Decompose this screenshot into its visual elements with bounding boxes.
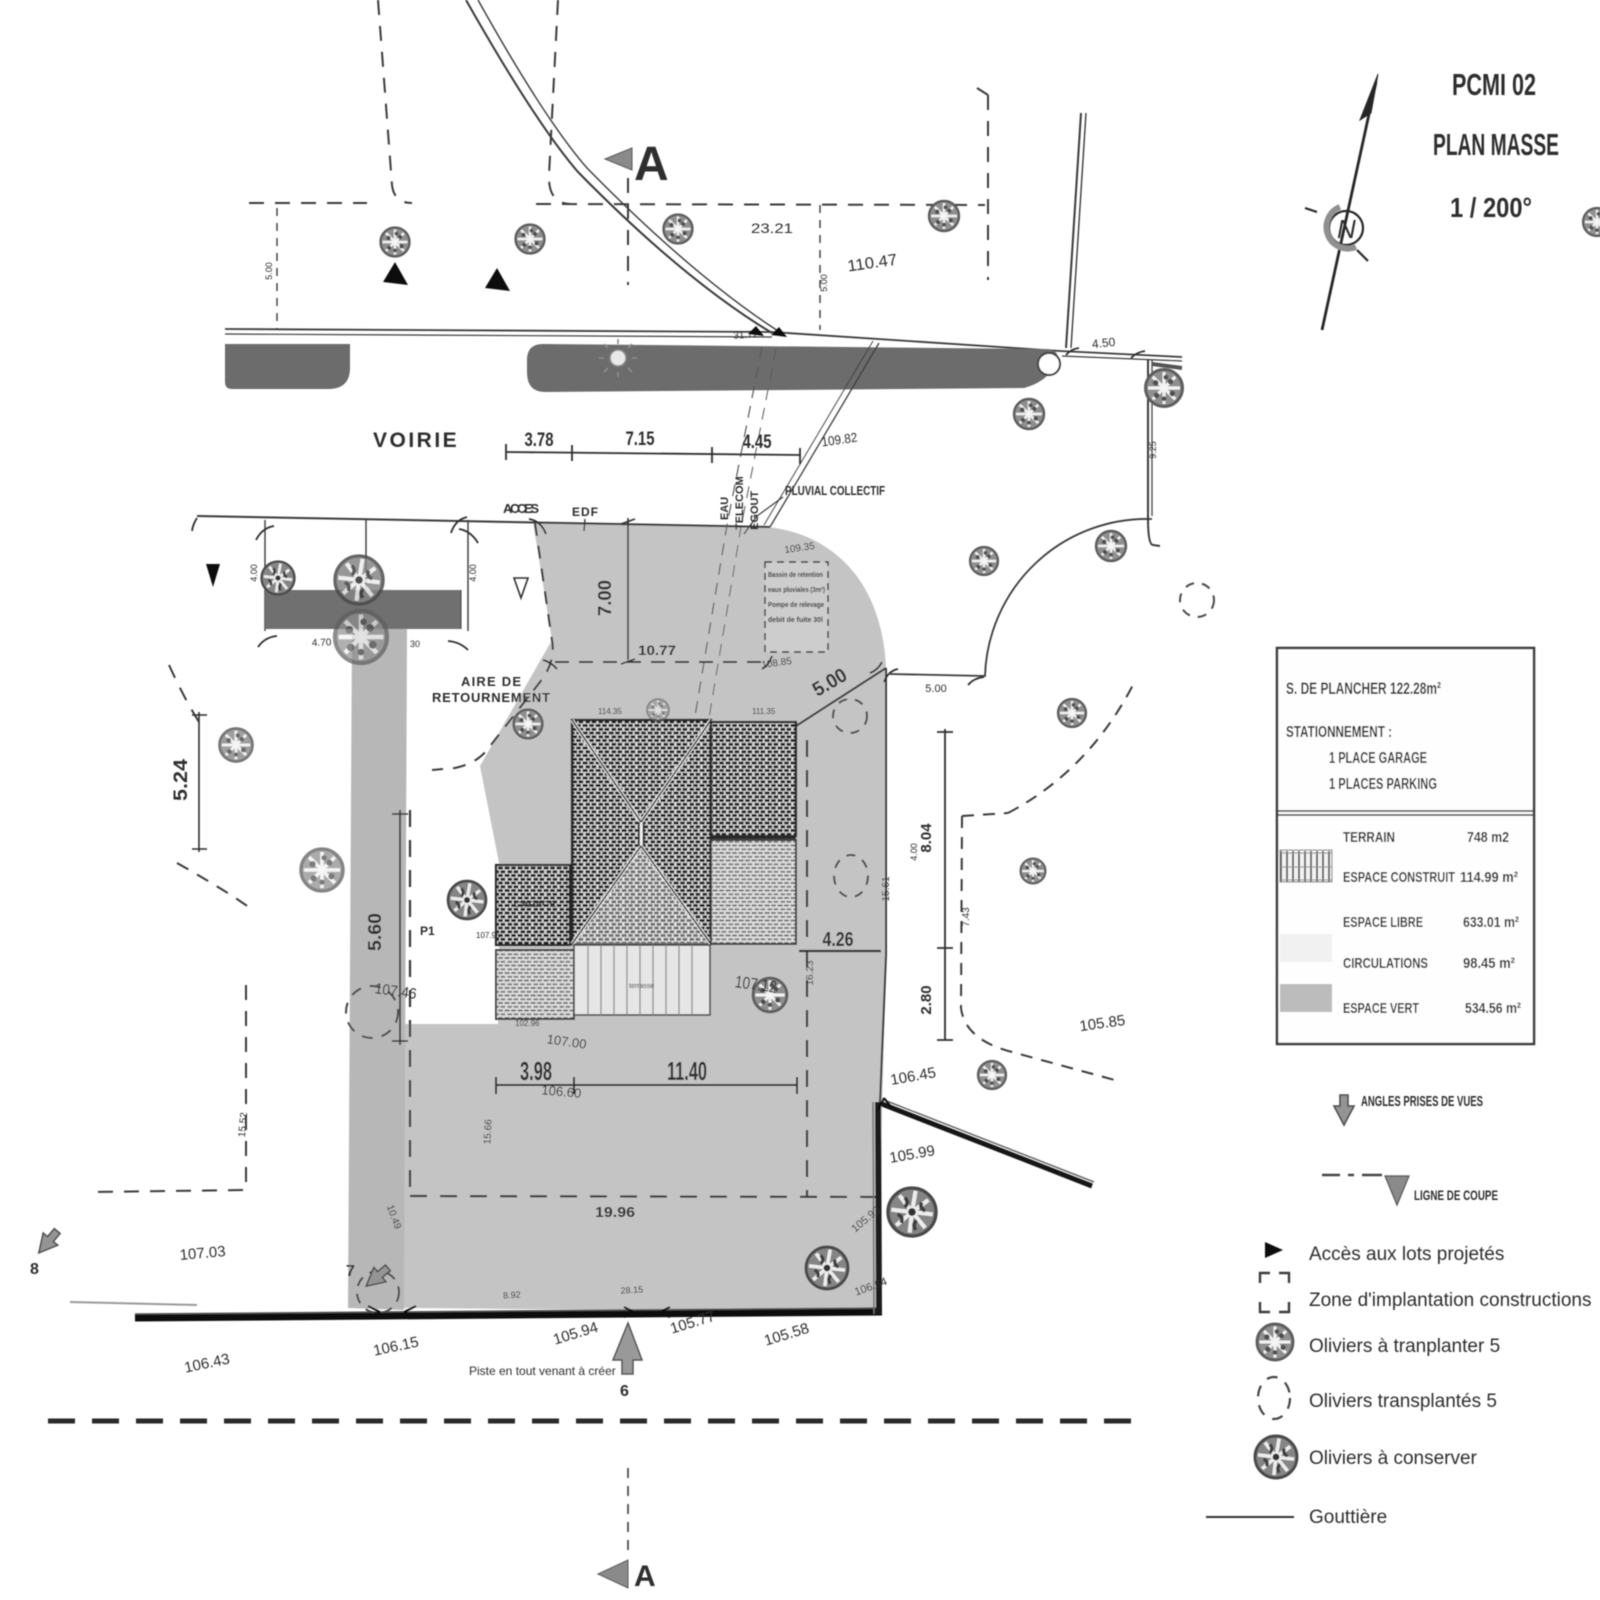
svg-text:2.80: 2.80 [918, 985, 935, 1014]
svg-text:4.50: 4.50 [1091, 335, 1116, 351]
svg-text:107.95: 107.95 [476, 931, 501, 940]
svg-text:debit de fuite 30l: debit de fuite 30l [768, 617, 823, 624]
svg-text:ACCES: ACCES [503, 501, 539, 516]
svg-text:748 m2: 748 m2 [1467, 829, 1509, 846]
svg-text:633.01 m²: 633.01 m² [1463, 914, 1519, 931]
svg-text:6: 6 [620, 1383, 629, 1400]
svg-text:RETOURNEMENT: RETOURNEMENT [432, 690, 550, 705]
svg-text:534.56 m²: 534.56 m² [1465, 1000, 1521, 1017]
svg-text:ESPACE CONSTRUIT: ESPACE CONSTRUIT [1343, 869, 1455, 886]
svg-text:Piste en tout venant à créer: Piste en tout venant à créer [469, 1364, 616, 1378]
svg-text:1 PLACES PARKING: 1 PLACES PARKING [1329, 776, 1437, 793]
svg-text:5.00: 5.00 [819, 274, 829, 292]
svg-text:terrasse: terrasse [629, 983, 654, 990]
svg-text:11.40: 11.40 [667, 1056, 707, 1086]
svg-text:4.26: 4.26 [823, 929, 854, 951]
svg-text:S. DE PLANCHER 122.28m²: S. DE PLANCHER 122.28m² [1286, 679, 1441, 698]
svg-text:5.00: 5.00 [925, 683, 946, 695]
svg-text:3.98: 3.98 [520, 1056, 552, 1086]
svg-text:A: A [634, 1560, 656, 1593]
svg-text:114.35: 114.35 [598, 707, 622, 716]
svg-text:PLAN MASSE: PLAN MASSE [1433, 127, 1559, 162]
svg-text:15.61: 15.61 [881, 876, 892, 901]
svg-text:114.99 m²: 114.99 m² [1460, 869, 1518, 886]
svg-text:28.15: 28.15 [620, 1284, 643, 1295]
svg-text:3.78: 3.78 [525, 430, 554, 451]
svg-text:8: 8 [30, 1261, 39, 1278]
svg-text:7.15: 7.15 [626, 429, 655, 450]
svg-text:4.00: 4.00 [909, 843, 919, 861]
svg-text:8.92: 8.92 [503, 1290, 521, 1301]
svg-text:4.00: 4.00 [468, 564, 478, 582]
svg-text:GARAGE: GARAGE [514, 900, 557, 909]
svg-text:111.35: 111.35 [752, 707, 776, 716]
svg-text:CIRCULATIONS: CIRCULATIONS [1343, 955, 1428, 972]
svg-text:eaux pluviales (3m³): eaux pluviales (3m³) [768, 587, 825, 594]
svg-text:Oliviers à conserver: Oliviers à conserver [1309, 1448, 1478, 1469]
svg-text:TERRAIN: TERRAIN [1343, 829, 1395, 846]
svg-text:EDF: EDF [572, 505, 598, 519]
svg-text:VOIRIE: VOIRIE [373, 429, 459, 452]
svg-text:5.00: 5.00 [264, 262, 274, 280]
svg-text:98.45 m²: 98.45 m² [1463, 955, 1515, 972]
svg-text:8.04: 8.04 [918, 823, 935, 853]
svg-text:Oliviers transplantés 5: Oliviers transplantés 5 [1309, 1391, 1497, 1412]
svg-text:23.21: 23.21 [751, 220, 793, 236]
svg-text:9.25: 9.25 [1148, 441, 1158, 459]
svg-text:15.52: 15.52 [237, 1111, 250, 1137]
svg-text:A: A [634, 138, 669, 191]
svg-text:AIRE DE: AIRE DE [461, 674, 521, 689]
svg-text:N: N [1337, 214, 1356, 244]
svg-text:10.77: 10.77 [638, 642, 676, 658]
svg-text:7.00: 7.00 [595, 580, 615, 616]
svg-text:15.66: 15.66 [482, 1119, 494, 1145]
svg-text:4.45: 4.45 [743, 432, 772, 453]
svg-text:7: 7 [346, 1263, 355, 1280]
svg-text:4.00: 4.00 [249, 564, 259, 582]
svg-text:Pompe de relevage: Pompe de relevage [768, 602, 824, 609]
svg-text:EAU: EAU [719, 497, 731, 520]
svg-text:ESPACE VERT: ESPACE VERT [1343, 1000, 1419, 1017]
svg-text:1 PLACE GARAGE: 1 PLACE GARAGE [1329, 750, 1427, 767]
svg-text:EGOUT: EGOUT [749, 491, 761, 530]
svg-text:Bassin de retention: Bassin de retention [768, 572, 823, 579]
svg-text:LIGNE DE COUPE: LIGNE DE COUPE [1414, 1187, 1498, 1203]
svg-text:102.96: 102.96 [515, 1019, 540, 1028]
svg-text:Accès aux lots projetés: Accès aux lots projetés [1309, 1244, 1504, 1265]
svg-text:1 / 200°: 1 / 200° [1450, 192, 1532, 223]
svg-text:16.23: 16.23 [805, 960, 816, 985]
svg-text:ANGLES PRISES DE VUES: ANGLES PRISES DE VUES [1361, 1093, 1483, 1110]
svg-text:7.43: 7.43 [961, 907, 972, 927]
svg-text:30: 30 [410, 639, 420, 649]
svg-text:PLUVIAL COLLECTIF: PLUVIAL COLLECTIF [785, 483, 885, 498]
svg-text:STATIONNEMENT :: STATIONNEMENT : [1286, 724, 1392, 741]
svg-text:4.70: 4.70 [312, 637, 332, 649]
svg-text:Zone d'implantation construct: Zone d'implantation constructions [1309, 1290, 1591, 1311]
svg-text:P1: P1 [420, 924, 435, 938]
svg-text:TELECOM: TELECOM [734, 476, 746, 530]
svg-text:Gouttière: Gouttière [1309, 1507, 1387, 1528]
svg-text:PCMI 02: PCMI 02 [1452, 67, 1536, 102]
svg-text:19.96: 19.96 [595, 1204, 635, 1221]
svg-text:ESPACE LIBRE: ESPACE LIBRE [1343, 914, 1423, 931]
svg-text:5.24: 5.24 [171, 759, 192, 801]
svg-text:Oliviers à tranplanter 5: Oliviers à tranplanter 5 [1309, 1336, 1500, 1357]
svg-text:5.60: 5.60 [365, 913, 385, 951]
